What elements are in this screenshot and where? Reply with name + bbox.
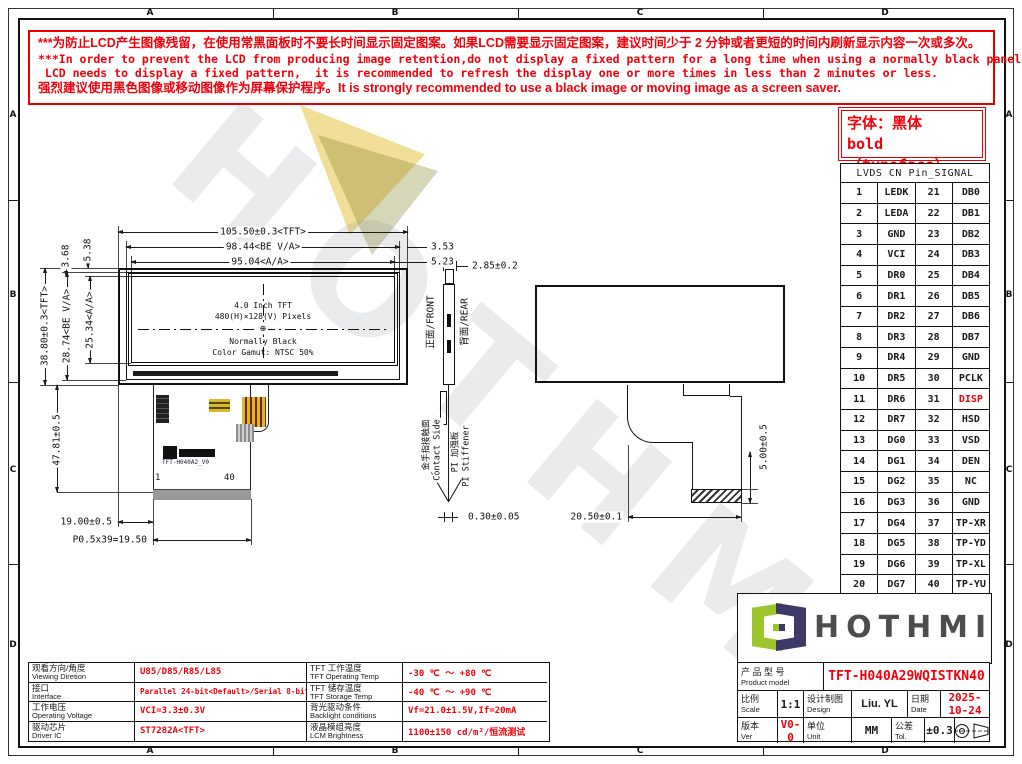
zone-label-top: D <box>881 8 888 18</box>
typeface-note-cn: 字体：黑体 <box>847 113 977 134</box>
spec-label: TFT 储存温度 TFT Storage Temp <box>307 683 403 703</box>
ext-line <box>628 445 629 522</box>
pin-signal: GND <box>952 348 989 369</box>
spec-value: Parallel 24-bit<Default>/Serial 8-bit RG… <box>135 683 307 703</box>
pin-number: 30 <box>915 368 952 389</box>
label-contact-side-en: Contact Side <box>433 417 444 482</box>
dim-tick <box>444 512 445 522</box>
dim-fpc-offset: 19.00±0.5 <box>59 517 114 528</box>
pin-signal: DB5 <box>952 286 989 307</box>
dim-pin-pitch: P0.5x39=19.50 <box>71 535 149 546</box>
rear-fpc-left-edge <box>627 385 693 443</box>
zone-label-bottom: C <box>637 746 644 756</box>
pin-number: 29 <box>915 348 952 369</box>
dim-height-active: 25.34<A/A> <box>85 289 96 350</box>
pin-number: 32 <box>915 410 952 431</box>
pin-number: 26 <box>915 286 952 307</box>
dim-fpc-position: 20.50±0.1 <box>569 512 624 523</box>
pin-signal: DB2 <box>952 224 989 245</box>
spec-table: 观看方向/角度 Viewing Diretion U85/D85/R85/L85… <box>28 662 550 742</box>
spec-value: VCI=3.3±0.3V <box>135 702 307 722</box>
product-model-label: 产 品 型 号 Product model <box>738 663 824 690</box>
warning-line-mixed: 强烈建议使用黑色图像或移动图像作为屏幕保护程序。It is strongly r… <box>38 80 985 97</box>
pin-number: 7 <box>841 306 878 327</box>
pin-number: 5 <box>841 265 878 286</box>
pin-signal: DR5 <box>878 368 915 389</box>
spec-label: 液晶模组亮度 LCM Brightness <box>307 722 403 742</box>
dim-top-offset-1: 5.38 <box>83 237 94 264</box>
side-view-tape <box>447 340 451 353</box>
zone-tick <box>518 746 519 756</box>
fpc-ic <box>236 424 254 442</box>
pin-signal: DR7 <box>878 410 915 431</box>
label-cn: 接口 <box>29 683 134 693</box>
side-view-top-step <box>445 269 454 284</box>
scale-label: 比例 Scale <box>738 691 778 717</box>
label-front-face: 正面/FRONT <box>426 293 437 350</box>
zone-label-top: C <box>637 8 644 18</box>
zone-tick <box>1004 200 1014 201</box>
pin-signal: GND <box>952 492 989 513</box>
pin-signal: DG3 <box>878 492 915 513</box>
pin-signal: DB7 <box>952 327 989 348</box>
pin-signal: HSD <box>952 410 989 431</box>
version-value: V0-0 <box>778 718 804 743</box>
spec-value: Vf=21.0±1.5V,If=20mA <box>403 702 547 722</box>
label-en: TFT Operating Temp <box>307 673 402 682</box>
label-en: Backlight conditions <box>307 712 402 721</box>
spec-label: 驱动芯片 Driver IC <box>29 722 135 742</box>
pin-number: 38 <box>915 533 952 554</box>
pin-table-header: LVDS CN Pin_SIGNAL <box>841 164 990 183</box>
title-block-row: 产 品 型 号 Product model TFT-H040A29WQISTKN… <box>738 663 989 690</box>
dim-line <box>153 540 251 541</box>
pin-signal: DG2 <box>878 471 915 492</box>
pin-row: 4 VCI 24 DB3 <box>841 244 990 265</box>
pin-number: 16 <box>841 492 878 513</box>
pin-signal: PCLK <box>952 368 989 389</box>
label-cn: TFT 储存温度 <box>307 683 402 693</box>
company-logo-box: HOTHMI <box>737 593 992 664</box>
pin-row: 11 DR6 31 DISP <box>841 389 990 410</box>
pin-row: 5 DR0 25 DB4 <box>841 265 990 286</box>
label-cn: 公差 <box>892 721 924 732</box>
pin-signal: TP-YD <box>952 533 989 554</box>
pin-signal-table: LVDS CN Pin_SIGNAL 1 LEDK 21 DB0 2 LEDA … <box>840 163 990 596</box>
third-angle-projection-icon <box>955 720 989 742</box>
pin-signal: TP-XL <box>952 554 989 575</box>
dim-width-bezel: 98.44<BE V/A> <box>224 242 302 253</box>
dim-fpc-length: 47.81±0.5 <box>52 412 63 467</box>
dim-line <box>628 517 741 518</box>
drawing-sheet: HOTHMI A B C D A B C D A B C D A B C D *… <box>0 0 1022 764</box>
pin-row: 9 DR4 29 GND <box>841 348 990 369</box>
pin-number: 36 <box>915 492 952 513</box>
zone-label-bottom: B <box>392 746 399 756</box>
date-label: 日期 Date <box>908 691 941 717</box>
label-en: Design <box>804 705 851 714</box>
pin-signal: DR2 <box>878 306 915 327</box>
pin-signal: DR6 <box>878 389 915 410</box>
label-cn: 设计制图 <box>804 694 851 705</box>
label-contact-side-cn: 金手指接触面 <box>422 417 433 472</box>
pin-signal: DG1 <box>878 451 915 472</box>
zone-label-left: C <box>10 465 17 475</box>
pin-number: 31 <box>915 389 952 410</box>
fpc-component <box>242 397 266 427</box>
pin-number: 13 <box>841 430 878 451</box>
pin-number: 39 <box>915 554 952 575</box>
pin-row: 13 DG0 33 VSD <box>841 430 990 451</box>
label-en: Unit <box>804 732 851 741</box>
pin-number: 3 <box>841 224 878 245</box>
pin-row: 7 DR2 27 DB6 <box>841 306 990 327</box>
pin-signal: DB0 <box>952 183 989 204</box>
pin-table-title: LVDS CN Pin_SIGNAL <box>841 164 990 183</box>
warning-line-en: LCD needs to display a fixed pattern, it… <box>38 66 985 80</box>
zone-tick <box>273 746 274 756</box>
zone-tick <box>518 8 519 18</box>
warning-line-en: ***In order to prevent the LCD from prod… <box>38 52 985 66</box>
dim-fpc-thickness: 0.30±0.05 <box>466 512 521 523</box>
pin-number: 27 <box>915 306 952 327</box>
fpc-label-mark <box>163 446 177 459</box>
leader-line <box>394 262 427 263</box>
zone-tick <box>8 564 18 565</box>
fpc-label-mark <box>179 449 215 457</box>
zone-tick <box>8 200 18 201</box>
designer-value: Liu. YL <box>852 691 908 717</box>
pin-number: 28 <box>915 327 952 348</box>
pin-number: 33 <box>915 430 952 451</box>
pin-number: 25 <box>915 265 952 286</box>
projection-symbol-cell <box>955 718 989 743</box>
rear-view-outline <box>535 285 785 383</box>
pin-number: 23 <box>915 224 952 245</box>
label-en: Tol. <box>892 732 924 741</box>
pin-signal: DB3 <box>952 244 989 265</box>
pin-signal: DB4 <box>952 265 989 286</box>
ext-line <box>57 492 153 493</box>
date-value: 2025-10-24 <box>941 691 989 717</box>
zone-label-top: B <box>392 8 399 18</box>
dim-gold-finger-length: 5.00±0.5 <box>759 422 770 472</box>
dim-line <box>118 522 153 523</box>
spec-label: 背光驱动条件 Backlight conditions <box>307 702 403 722</box>
unit-label: 单位 Unit <box>804 718 852 743</box>
pin-row: 12 DR7 32 HSD <box>841 410 990 431</box>
dim-width-active: 95.04<A/A> <box>229 257 290 268</box>
tolerance-label: 公差 Tol. <box>892 718 925 743</box>
design-label: 设计制图 Design <box>804 691 852 717</box>
side-view-tape <box>447 314 451 327</box>
typeface-note: 字体：黑体 bold（typeface） <box>838 107 986 161</box>
label-cn: 单位 <box>804 721 851 732</box>
spec-label: 工作电压 Operating Voltage <box>29 702 135 722</box>
dim-height-bezel: 28.74<BE V/A> <box>62 287 73 365</box>
label-pi-stiffener-en: PI Stiffener <box>462 423 473 488</box>
fpc-pin1-label: 1 <box>155 473 160 483</box>
spec-label: 接口 Interface <box>29 683 135 703</box>
pin-row: 8 DR3 28 DB7 <box>841 327 990 348</box>
spec-value: 1100±150 cd/m²/恒流测试 <box>403 722 547 742</box>
dim-top-offset-2: 3.68 <box>61 243 72 270</box>
dim-line <box>438 517 458 518</box>
label-en: Interface <box>29 693 134 702</box>
ext-line <box>40 268 118 269</box>
fpc-component <box>209 399 230 412</box>
pin-signal: VSD <box>952 430 989 451</box>
screen-size-text: 4.0 Inch TFT <box>118 301 408 310</box>
pin-signal: DR4 <box>878 348 915 369</box>
product-model-value: TFT-H040A29WQISTKN40 <box>824 663 989 690</box>
zone-label-top: A <box>147 8 154 18</box>
label-en: Product model <box>738 678 823 687</box>
screen-resolution-text: 480(H)×128(V) Pixels <box>118 312 408 321</box>
pin-row: 14 DG1 34 DEN <box>841 451 990 472</box>
pin-number: 11 <box>841 389 878 410</box>
pin-row: 3 GND 23 DB2 <box>841 224 990 245</box>
ext-line <box>40 385 118 386</box>
label-cn: 版本 <box>738 721 777 732</box>
title-block: 产 品 型 号 Product model TFT-H040A29WQISTKN… <box>737 662 990 742</box>
pin-signal: DISP <box>952 389 989 410</box>
label-en: Driver IC <box>29 732 134 741</box>
pin-row: 16 DG3 36 GND <box>841 492 990 513</box>
pin-number: 22 <box>915 203 952 224</box>
zone-tick <box>763 746 764 756</box>
zone-label-bottom: A <box>147 746 154 756</box>
pin-number: 37 <box>915 513 952 534</box>
pin-row: 6 DR1 26 DB5 <box>841 286 990 307</box>
pin-signal: DB1 <box>952 203 989 224</box>
fpc-pin40-label: 40 <box>224 473 235 483</box>
pin-signal: DB6 <box>952 306 989 327</box>
pin-number: 34 <box>915 451 952 472</box>
label-rear-face: 背面/REAR <box>460 296 471 348</box>
label-en: TFT Storage Temp <box>307 693 402 702</box>
pin-number: 18 <box>841 533 878 554</box>
dim-width-tft: 105.50±0.3<TFT> <box>218 227 308 238</box>
pin-signal: NC <box>952 471 989 492</box>
dim-tick <box>452 512 453 522</box>
pin-signal: LEDA <box>878 203 915 224</box>
zone-label-bottom: D <box>881 746 888 756</box>
backlight-bar <box>133 371 338 376</box>
label-en: Date <box>908 705 940 714</box>
pin-number: 17 <box>841 513 878 534</box>
dim-height-tft: 38.80±0.3<TFT> <box>40 284 51 368</box>
leader-line <box>456 266 468 267</box>
pin-signal: DR3 <box>878 327 915 348</box>
pin-number: 9 <box>841 348 878 369</box>
spec-value: -30 ℃ ～ +80 ℃ <box>403 663 547 683</box>
pin-signal: LEDK <box>878 183 915 204</box>
rear-fpc-edge <box>730 396 741 397</box>
spec-value: -40 ℃ ～ +90 ℃ <box>403 683 547 703</box>
zone-label-right: C <box>1006 465 1013 475</box>
ext-line <box>62 272 126 273</box>
pin-signal: DR1 <box>878 286 915 307</box>
pin-signal: DG4 <box>878 513 915 534</box>
pin-number: 1 <box>841 183 878 204</box>
dim-active-offset: 5.23 <box>429 257 456 268</box>
pin-signal: TP-XR <box>952 513 989 534</box>
pin-row: 1 LEDK 21 DB0 <box>841 183 990 204</box>
label-pi-stiffener-cn: PI 加强板 <box>451 430 462 475</box>
company-name: HOTHMI <box>814 610 993 645</box>
label-en: Ver <box>738 732 777 741</box>
pin-number: 12 <box>841 410 878 431</box>
pin-number: 4 <box>841 244 878 265</box>
label-cn: 比例 <box>738 694 777 705</box>
pin-row: 2 LEDA 22 DB1 <box>841 203 990 224</box>
pin-row: 19 DG6 39 TP-XL <box>841 554 990 575</box>
zone-label-right: A <box>1006 110 1013 120</box>
pin-row: 15 DG2 35 NC <box>841 471 990 492</box>
label-cn: 产 品 型 号 <box>738 667 823 678</box>
dim-thickness: 2.85±0.2 <box>470 261 520 272</box>
title-block-row: 比例 Scale 1:1 设计制图 Design Liu. YL 日期 Date… <box>738 690 989 717</box>
fpc-part-number: TFT-H040A2_V0 <box>162 459 209 466</box>
model-number: TFT-H040A29WQISTKN40 <box>828 669 985 684</box>
tolerance-value: ±0.3 <box>925 718 955 743</box>
spec-label: TFT 工作温度 TFT Operating Temp <box>307 663 403 683</box>
pin-signal: GND <box>878 224 915 245</box>
pin-signal: DG5 <box>878 533 915 554</box>
hothmi-logo-icon <box>752 603 806 651</box>
label-en: LCM Brightness <box>307 732 402 741</box>
pin-row: 10 DR5 30 PCLK <box>841 368 990 389</box>
pin-number: 15 <box>841 471 878 492</box>
label-en: Scale <box>738 705 777 714</box>
pin-signal: DG0 <box>878 430 915 451</box>
side-view-body <box>443 284 455 385</box>
warning-line-cn: ***为防止LCD产生图像残留，在使用常黑面板时不要长时间显示固定图案。如果LC… <box>38 35 985 52</box>
typeface-note-inner: 字体：黑体 bold（typeface） <box>841 110 983 158</box>
pin-number: 35 <box>915 471 952 492</box>
zone-label-left: A <box>10 110 17 120</box>
ext-line <box>741 503 742 522</box>
zone-tick <box>8 382 18 383</box>
zone-label-left: D <box>9 640 16 650</box>
rear-fpc-edge <box>692 443 693 490</box>
zone-label-right: B <box>1006 290 1013 300</box>
pin-number: 2 <box>841 203 878 224</box>
title-block-row: 版本 Ver V0-0 单位 Unit MM 公差 Tol. ±0.3 <box>738 717 989 743</box>
pin-number: 24 <box>915 244 952 265</box>
dim-bezel-offset: 3.53 <box>429 242 456 253</box>
pin-number: 8 <box>841 327 878 348</box>
fpc-connector <box>156 395 169 423</box>
spec-value: ST7282A<TFT> <box>135 722 307 742</box>
zone-tick <box>763 8 764 18</box>
version-label: 版本 Ver <box>738 718 778 743</box>
screen-gamut-text: Color Gamut: NTSC 50% <box>118 348 408 357</box>
pin-signal: DEN <box>952 451 989 472</box>
label-cn: 日期 <box>908 694 940 705</box>
screen-mode-text: Normally Black <box>118 337 408 346</box>
pin-row: 18 DG5 38 TP-YD <box>841 533 990 554</box>
zone-tick <box>1004 564 1014 565</box>
ext-line <box>118 385 119 527</box>
zone-label-right: D <box>1005 640 1012 650</box>
leader-lines <box>415 470 485 510</box>
logo-crossbar <box>779 624 785 631</box>
scale-value: 1:1 <box>778 691 804 717</box>
label-en: Operating Voltage <box>29 712 134 721</box>
center-mark: ⊕ <box>258 324 268 335</box>
rear-gold-fingers-hatched <box>691 489 742 503</box>
ext-line <box>62 380 126 381</box>
zone-label-left: B <box>10 290 17 300</box>
rear-fpc-edge <box>741 396 742 503</box>
zone-tick <box>273 8 274 18</box>
pin-row: 17 DG4 37 TP-XR <box>841 513 990 534</box>
spec-value: U85/D85/R85/L85 <box>135 663 307 683</box>
label-en: Viewing Diretion <box>29 673 134 682</box>
pin-number: 6 <box>841 286 878 307</box>
pin-number: 19 <box>841 554 878 575</box>
dim-line <box>750 452 751 503</box>
spec-label: 观看方向/角度 Viewing Diretion <box>29 663 135 683</box>
pin-signal: DG6 <box>878 554 915 575</box>
fpc-gold-fingers <box>153 489 251 500</box>
unit-value: MM <box>852 718 892 743</box>
image-retention-warning: ***为防止LCD产生图像残留，在使用常黑面板时不要长时间显示固定图案。如果LC… <box>28 30 995 105</box>
pin-number: 10 <box>841 368 878 389</box>
leader-line <box>407 247 427 248</box>
pin-number: 14 <box>841 451 878 472</box>
zone-tick <box>1004 382 1014 383</box>
pin-signal: DR0 <box>878 265 915 286</box>
pin-signal: VCI <box>878 244 915 265</box>
pin-number: 21 <box>915 183 952 204</box>
